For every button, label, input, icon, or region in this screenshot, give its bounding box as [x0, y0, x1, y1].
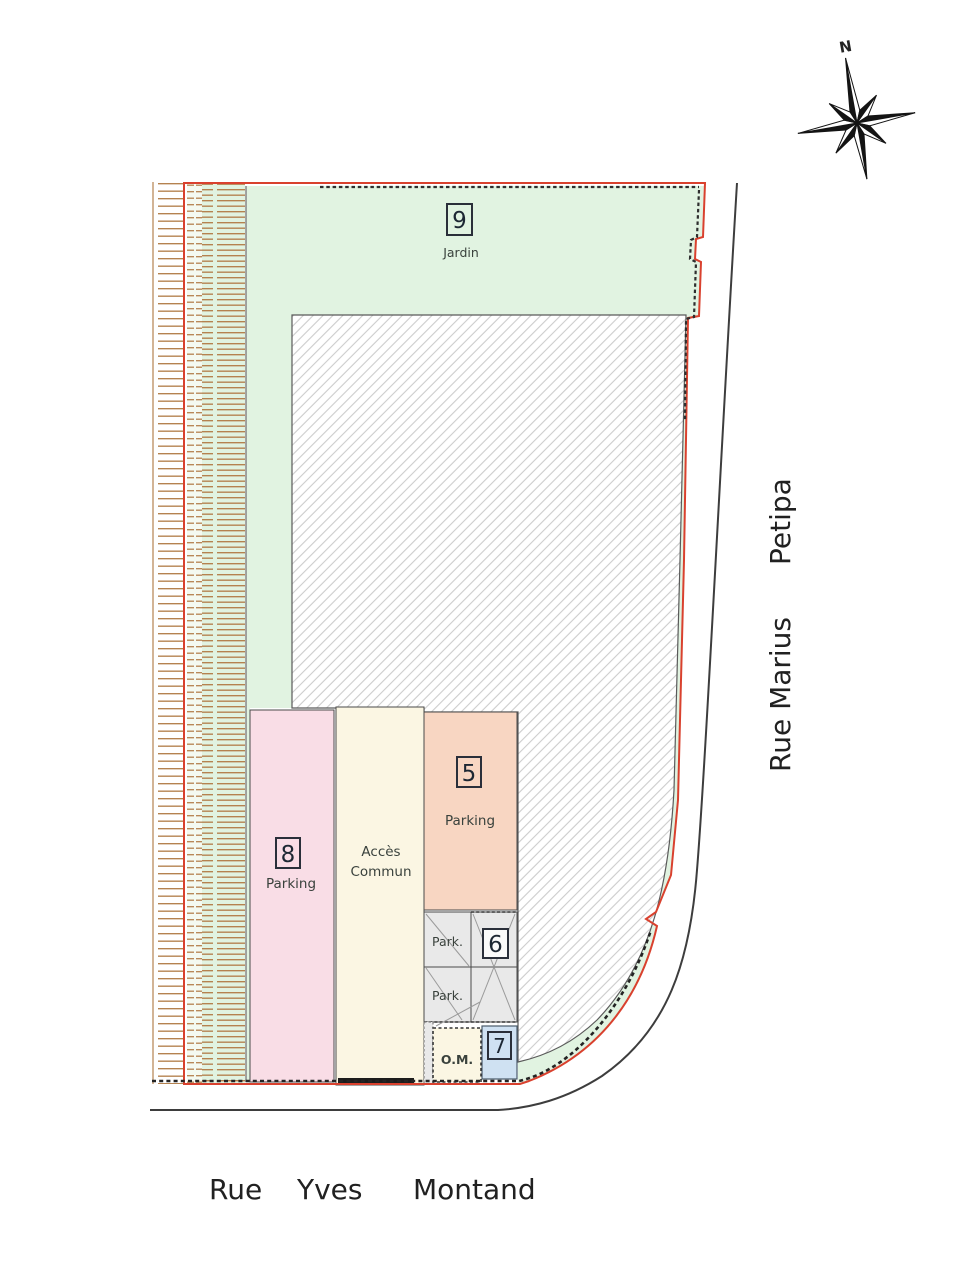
lot-number-7: 7: [493, 1034, 506, 1058]
street-name-rue: Rue: [209, 1173, 262, 1206]
lot-number-8: 8: [281, 842, 296, 868]
parking-8-label: Parking: [266, 876, 316, 892]
om-side-strip: [424, 1022, 433, 1084]
park-label-top: Park.: [432, 934, 463, 949]
street-name-rue-marius: Rue Marius: [764, 617, 797, 772]
ladder-strip-inner-white: [187, 182, 202, 1084]
street-name-yves: Yves: [296, 1173, 363, 1206]
lot-number-5: 5: [462, 761, 477, 787]
lot-number-9: 9: [452, 208, 467, 234]
site-plan: 9 Jardin 8 Parking Accès Commun 5 Parkin…: [0, 0, 960, 1265]
garden-label: Jardin: [442, 245, 479, 260]
garden-left-band: [246, 317, 292, 708]
ladder-strip-outer: [152, 182, 183, 1084]
parking-5-label: Parking: [445, 813, 495, 829]
park-label-bottom: Park.: [432, 988, 463, 1003]
lot-number-6: 6: [488, 932, 503, 958]
compass-rose: N: [783, 28, 925, 189]
acces-commun-label-line1: Accès: [361, 844, 400, 860]
acces-commun-label-line2: Commun: [350, 864, 411, 880]
ladder-strip-inner-green: [202, 182, 245, 1084]
zone-5-parking-area: [424, 712, 517, 910]
street-name-montand: Montand: [413, 1173, 536, 1206]
zone-8-parking-area: [250, 710, 334, 1082]
compass-north-label: N: [838, 37, 853, 57]
zone-acces-commun-area: [336, 707, 424, 1085]
om-label: O.M.: [441, 1052, 473, 1067]
site-plan-drawing: 9 Jardin 8 Parking Accès Commun 5 Parkin…: [0, 0, 960, 1265]
street-name-petipa: Petipa: [764, 478, 797, 565]
